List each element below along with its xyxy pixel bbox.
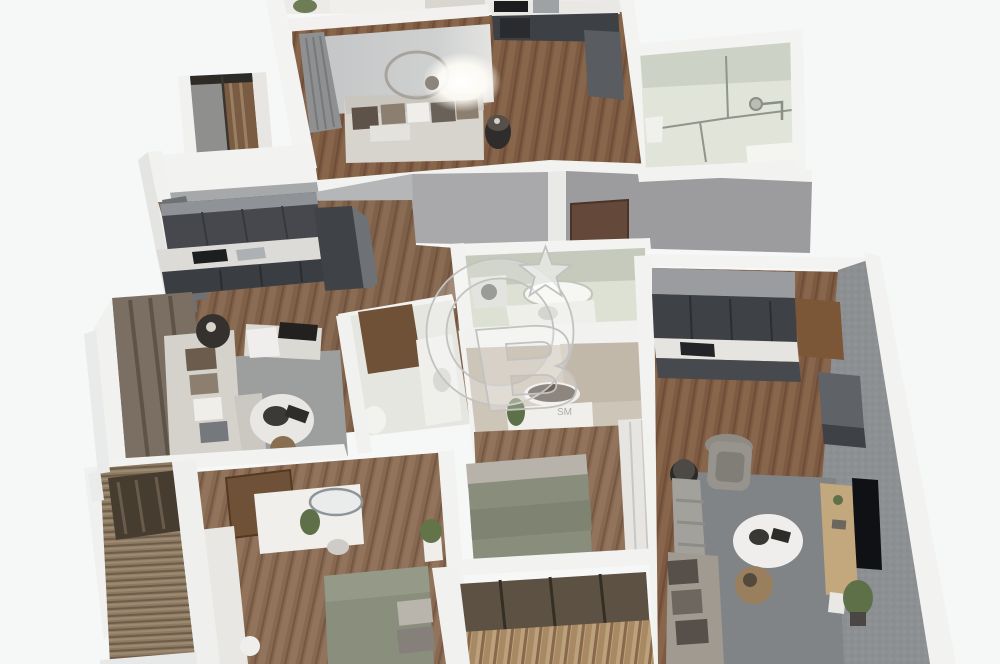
- svg-text:SM: SM: [557, 407, 572, 418]
